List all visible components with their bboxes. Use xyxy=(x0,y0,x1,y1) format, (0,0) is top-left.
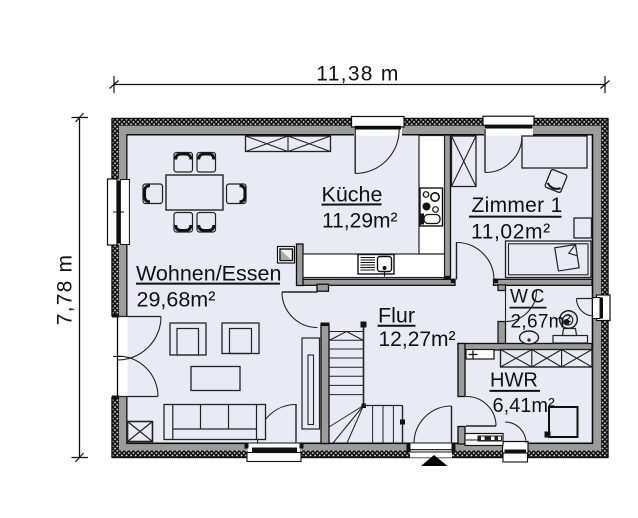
svg-text:11,38 m: 11,38 m xyxy=(316,63,399,86)
svg-text:Wohnen/Essen: Wohnen/Essen xyxy=(136,262,281,286)
svg-text:11,02m²: 11,02m² xyxy=(471,221,551,244)
svg-text:Flur: Flur xyxy=(378,304,415,328)
svg-text:Zimmer 1: Zimmer 1 xyxy=(472,194,563,217)
svg-text:2,67m²: 2,67m² xyxy=(511,312,572,333)
svg-text:29,68m²: 29,68m² xyxy=(137,288,216,312)
svg-text:6,41m²: 6,41m² xyxy=(493,395,556,417)
svg-text:WC: WC xyxy=(510,286,547,307)
svg-text:7,78 m: 7,78 m xyxy=(54,254,77,325)
svg-text:HWR: HWR xyxy=(490,370,538,392)
svg-text:Küche: Küche xyxy=(322,183,383,207)
svg-text:11,29m²: 11,29m² xyxy=(322,210,397,233)
svg-text:12,27m²: 12,27m² xyxy=(379,328,456,351)
